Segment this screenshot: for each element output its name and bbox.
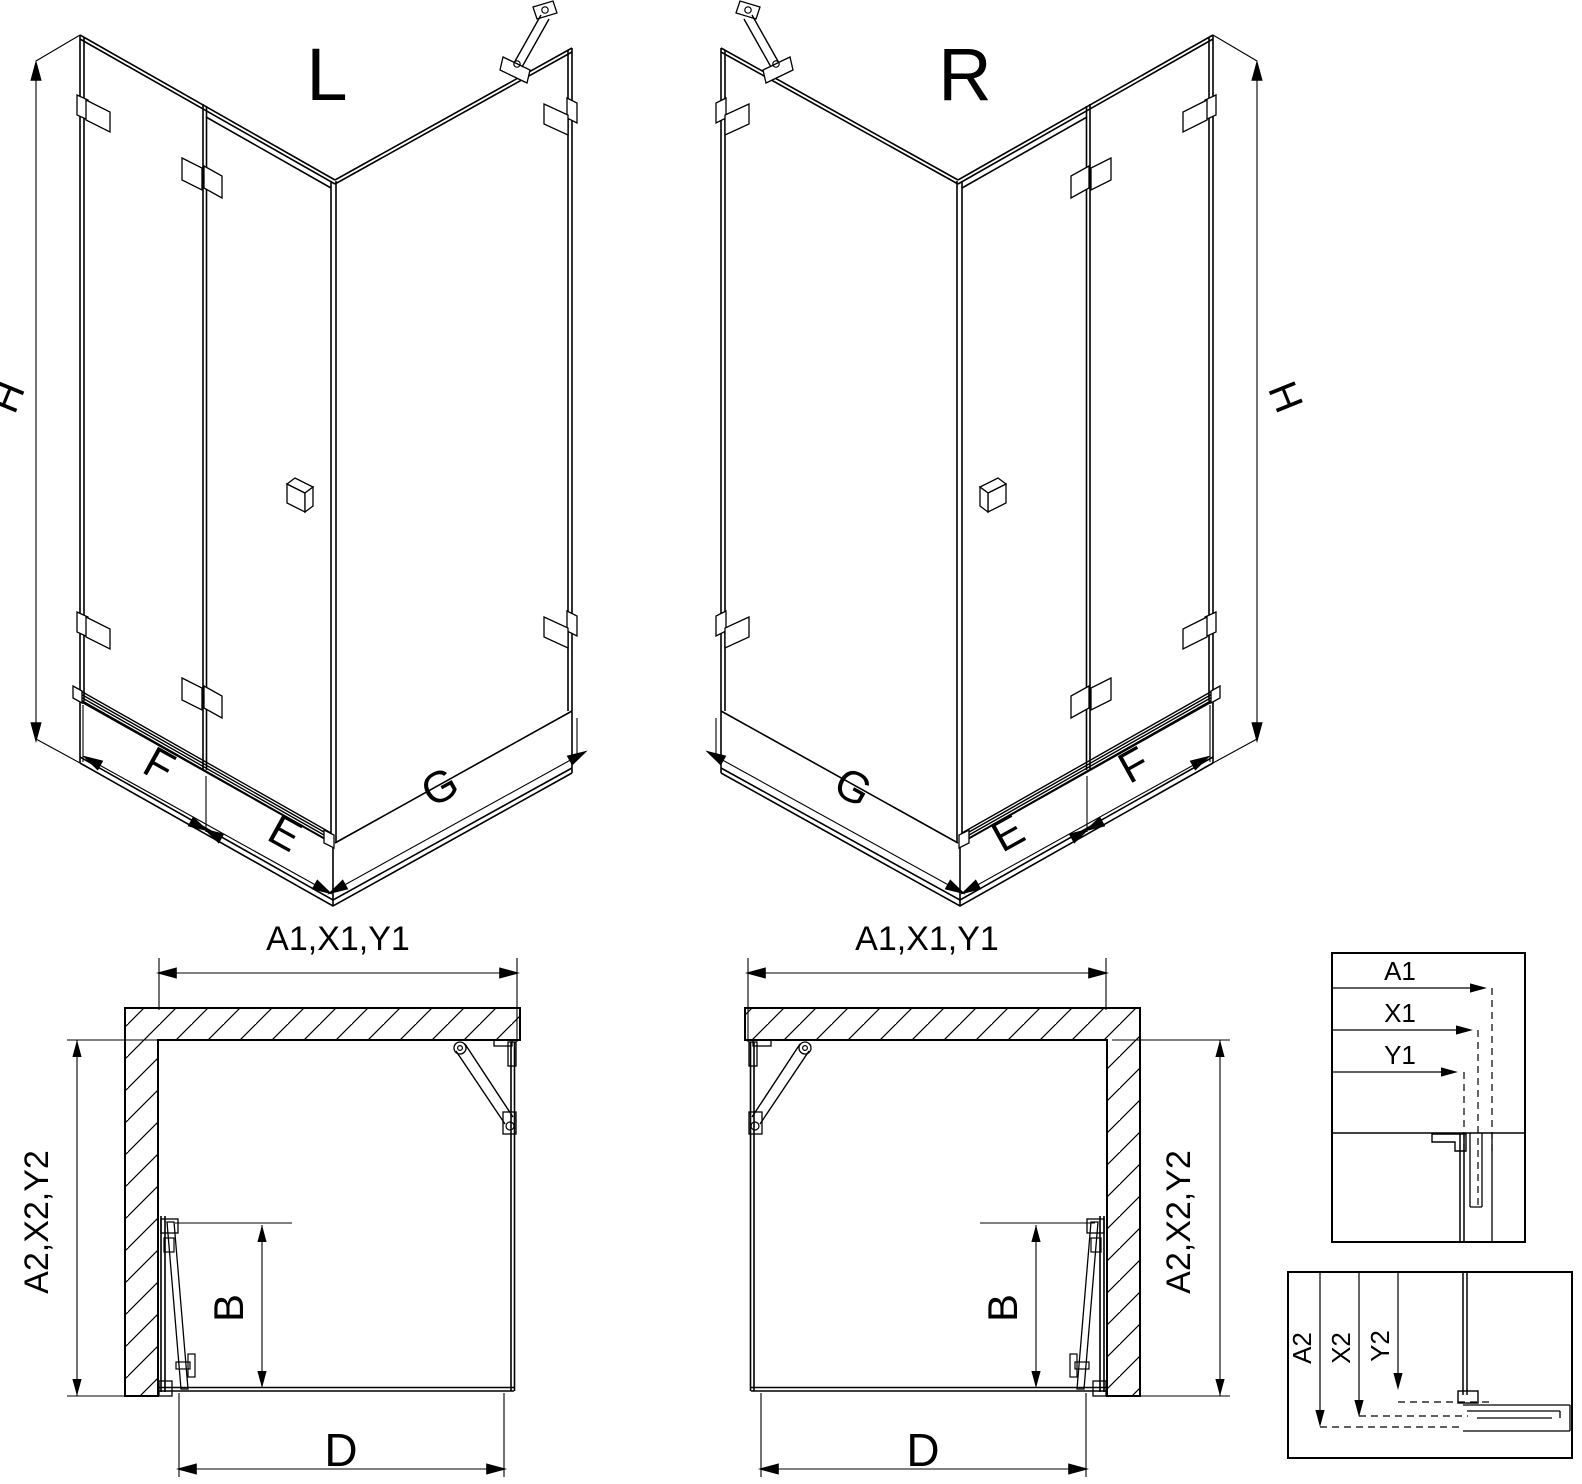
detail-y2-label: Y2 [1365,1330,1395,1362]
dim-e-right: E [983,805,1032,862]
detail-x2-label: X2 [1326,1332,1356,1364]
plan-dim-side-right: A2,X2,Y2 [1160,1150,1198,1294]
dim-g-right: G [826,758,880,817]
variant-label-left: L [306,33,347,116]
iso-view-right [706,1,1262,906]
detail-a2-label: A2 [1287,1332,1317,1364]
plan-dim-side-left: A2,X2,Y2 [18,1150,56,1294]
detail-x1-label: X1 [1384,998,1416,1028]
dim-e-left: E [260,805,309,862]
plan-dim-d-right: D [906,1424,939,1476]
dim-height-right: H [1259,375,1311,418]
plan-dim-d-left: D [324,1424,357,1476]
technical-drawing-canvas: L R H H F E G F E G [0,0,1582,1484]
plan-dim-b-left: B [205,1294,252,1322]
iso-view-left [31,1,587,906]
dim-f-right: F [1110,737,1157,793]
dim-g-left: G [413,758,467,817]
detail-bottom-section [1288,1272,1572,1458]
detail-y1-label: Y1 [1384,1040,1416,1070]
plan-dim-top-left: A1,X1,Y1 [266,920,410,958]
variant-label-right: R [938,33,991,116]
plan-dim-top-right: A1,X1,Y1 [855,920,999,958]
detail-top-section [1332,953,1525,1242]
technical-drawing-page: L R H H F E G F E G [0,0,1582,1484]
dim-f-left: F [135,737,182,793]
detail-a1-label: A1 [1384,956,1416,986]
plan-dim-b-right: B [979,1294,1026,1322]
dim-height-left: H [0,375,34,418]
